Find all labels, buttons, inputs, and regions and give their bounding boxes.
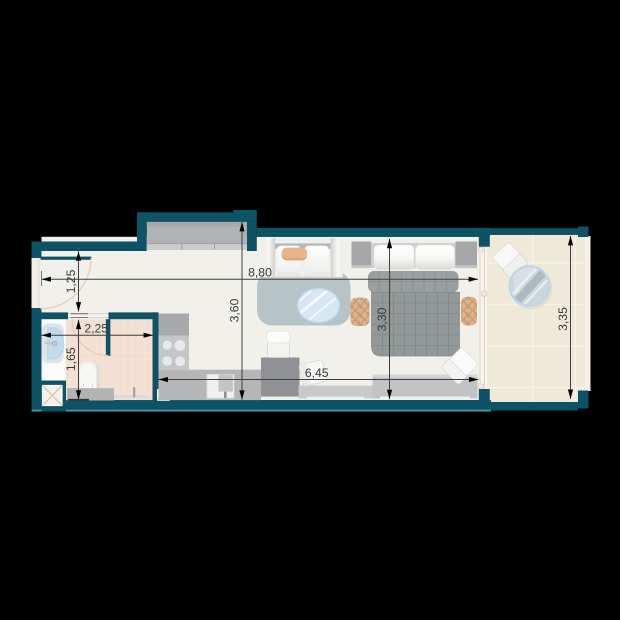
svg-text:6,45: 6,45 <box>305 366 329 380</box>
svg-text:1,25: 1,25 <box>64 269 78 293</box>
svg-text:3,30: 3,30 <box>375 307 389 331</box>
svg-text:2,25: 2,25 <box>84 322 108 336</box>
svg-text:1,65: 1,65 <box>64 347 78 371</box>
svg-text:3,60: 3,60 <box>227 298 241 322</box>
svg-text:8,80: 8,80 <box>248 265 272 279</box>
svg-text:3,35: 3,35 <box>556 307 570 331</box>
